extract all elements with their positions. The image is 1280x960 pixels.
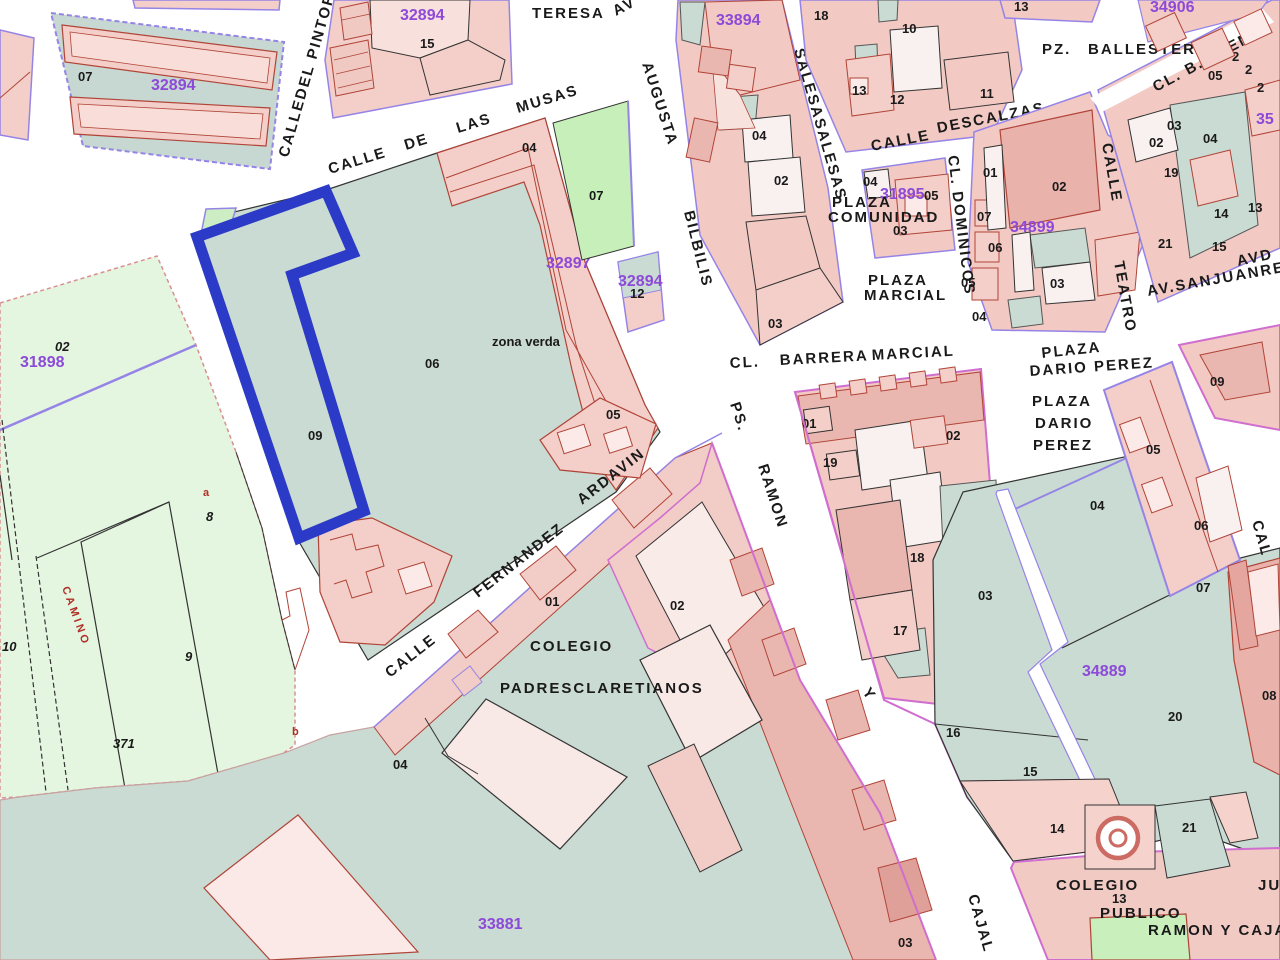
- svg-text:04: 04: [1203, 131, 1218, 146]
- svg-text:18: 18: [910, 550, 924, 565]
- svg-text:04: 04: [972, 309, 987, 324]
- svg-text:TERESA: TERESA: [532, 5, 605, 22]
- svg-text:05: 05: [1208, 68, 1222, 83]
- svg-text:15: 15: [1023, 764, 1037, 779]
- svg-text:34889: 34889: [1082, 663, 1127, 680]
- svg-text:21: 21: [1182, 820, 1196, 835]
- svg-text:07: 07: [977, 209, 991, 224]
- svg-text:07: 07: [78, 69, 92, 84]
- svg-text:02: 02: [946, 428, 960, 443]
- svg-text:JU: JU: [1258, 877, 1280, 894]
- svg-text:04: 04: [752, 128, 767, 143]
- svg-text:32894: 32894: [400, 7, 445, 24]
- svg-text:31898: 31898: [20, 354, 65, 371]
- svg-text:33881: 33881: [478, 916, 523, 933]
- svg-text:32894: 32894: [151, 77, 196, 94]
- svg-text:14: 14: [1214, 206, 1229, 221]
- svg-text:04: 04: [522, 140, 537, 155]
- svg-text:8: 8: [206, 509, 214, 524]
- svg-text:06: 06: [425, 356, 439, 371]
- svg-text:12: 12: [630, 286, 644, 301]
- svg-text:03: 03: [978, 588, 992, 603]
- svg-text:05: 05: [606, 407, 620, 422]
- svg-text:14: 14: [1050, 821, 1065, 836]
- svg-text:PEREZ: PEREZ: [1033, 437, 1093, 454]
- svg-text:COMUNIDAD: COMUNIDAD: [828, 209, 939, 226]
- svg-text:PUBLICO: PUBLICO: [1100, 905, 1182, 922]
- svg-text:07: 07: [589, 188, 603, 203]
- svg-text:02: 02: [670, 598, 684, 613]
- svg-text:07: 07: [1196, 580, 1210, 595]
- svg-text:17: 17: [893, 623, 907, 638]
- svg-text:zona verda: zona verda: [492, 334, 561, 349]
- svg-text:01: 01: [545, 594, 559, 609]
- svg-text:16: 16: [946, 725, 960, 740]
- svg-text:18: 18: [814, 8, 828, 23]
- svg-text:15: 15: [1212, 239, 1226, 254]
- svg-text:PADRESCLARETIANOS: PADRESCLARETIANOS: [500, 680, 704, 697]
- svg-text:13: 13: [1248, 200, 1262, 215]
- svg-text:2: 2: [1257, 80, 1264, 95]
- svg-text:PLAZA: PLAZA: [1032, 393, 1092, 410]
- svg-text:03: 03: [1167, 118, 1181, 133]
- svg-text:MARCIAL: MARCIAL: [864, 287, 947, 304]
- svg-text:02: 02: [55, 339, 70, 354]
- svg-text:06: 06: [1194, 518, 1208, 533]
- svg-text:04: 04: [1090, 498, 1105, 513]
- svg-text:a: a: [203, 487, 210, 499]
- svg-text:35: 35: [1256, 111, 1274, 128]
- svg-text:19: 19: [1164, 165, 1178, 180]
- svg-text:04: 04: [863, 174, 878, 189]
- svg-text:03: 03: [1050, 276, 1064, 291]
- svg-text:03: 03: [898, 935, 912, 950]
- svg-text:08: 08: [1262, 688, 1276, 703]
- svg-text:05: 05: [1146, 442, 1160, 457]
- svg-text:DARIO: DARIO: [1035, 415, 1093, 432]
- svg-text:34899: 34899: [1010, 219, 1055, 236]
- svg-text:19: 19: [823, 455, 837, 470]
- svg-text:10: 10: [2, 639, 17, 654]
- svg-text:9: 9: [185, 649, 193, 664]
- svg-text:09: 09: [308, 428, 322, 443]
- svg-text:COLEGIO: COLEGIO: [1056, 877, 1139, 894]
- svg-text:10: 10: [902, 21, 916, 36]
- svg-text:02: 02: [1052, 179, 1066, 194]
- svg-text:21: 21: [1158, 236, 1172, 251]
- svg-text:09: 09: [1210, 374, 1224, 389]
- svg-text:371: 371: [113, 736, 135, 751]
- svg-text:03: 03: [768, 316, 782, 331]
- svg-text:15: 15: [420, 36, 434, 51]
- svg-text:COLEGIO: COLEGIO: [530, 638, 613, 655]
- svg-text:CL.: CL.: [729, 353, 760, 372]
- svg-text:2: 2: [1245, 62, 1252, 77]
- svg-text:11: 11: [980, 86, 994, 101]
- svg-text:13: 13: [1014, 0, 1028, 14]
- svg-text:04: 04: [393, 757, 408, 772]
- svg-text:13: 13: [852, 83, 866, 98]
- svg-text:33894: 33894: [716, 12, 761, 29]
- svg-text:12: 12: [890, 92, 904, 107]
- svg-text:RAMON Y CAJAL: RAMON Y CAJAL: [1148, 922, 1280, 939]
- svg-text:b: b: [292, 726, 299, 738]
- svg-text:20: 20: [1168, 709, 1182, 724]
- svg-text:02: 02: [1149, 135, 1163, 150]
- svg-text:05: 05: [924, 188, 938, 203]
- svg-text:PZ.: PZ.: [1042, 41, 1071, 58]
- svg-text:06: 06: [988, 240, 1002, 255]
- svg-text:02: 02: [774, 173, 788, 188]
- svg-text:01: 01: [983, 165, 997, 180]
- svg-text:13: 13: [1112, 891, 1126, 906]
